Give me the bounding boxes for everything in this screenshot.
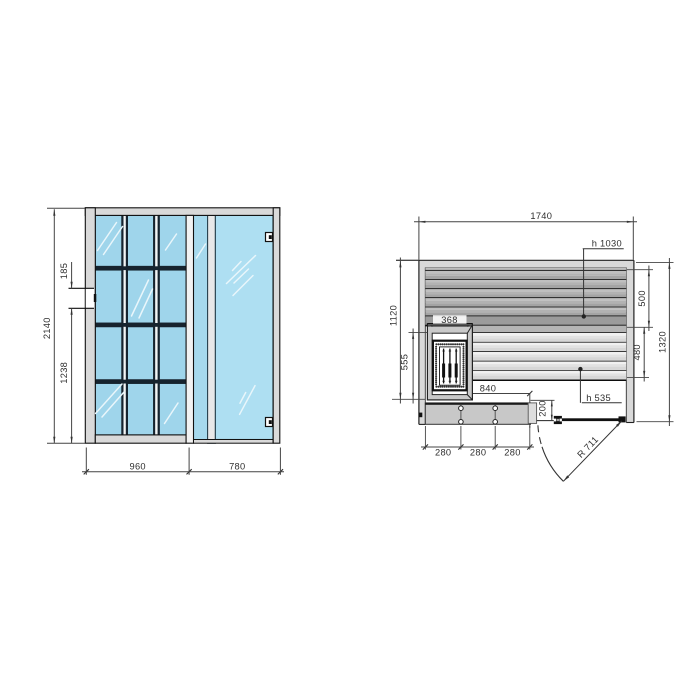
svg-text:185: 185 — [59, 263, 69, 279]
svg-text:1238: 1238 — [59, 362, 69, 384]
svg-text:780: 780 — [229, 461, 245, 471]
svg-text:200: 200 — [538, 400, 548, 416]
svg-text:h 1030: h 1030 — [592, 238, 622, 248]
svg-text:960: 960 — [129, 461, 145, 471]
svg-text:280: 280 — [435, 447, 451, 457]
svg-text:2140: 2140 — [42, 317, 52, 339]
svg-text:840: 840 — [480, 384, 496, 394]
svg-text:480: 480 — [632, 344, 642, 360]
svg-text:555: 555 — [400, 354, 410, 370]
svg-text:h 535: h 535 — [586, 393, 611, 403]
svg-text:280: 280 — [470, 447, 486, 457]
svg-text:1120: 1120 — [389, 305, 399, 326]
svg-text:1740: 1740 — [530, 211, 552, 221]
svg-text:280: 280 — [504, 447, 520, 457]
svg-text:368: 368 — [441, 315, 457, 325]
svg-text:1320: 1320 — [658, 331, 668, 353]
svg-text:500: 500 — [637, 290, 647, 306]
